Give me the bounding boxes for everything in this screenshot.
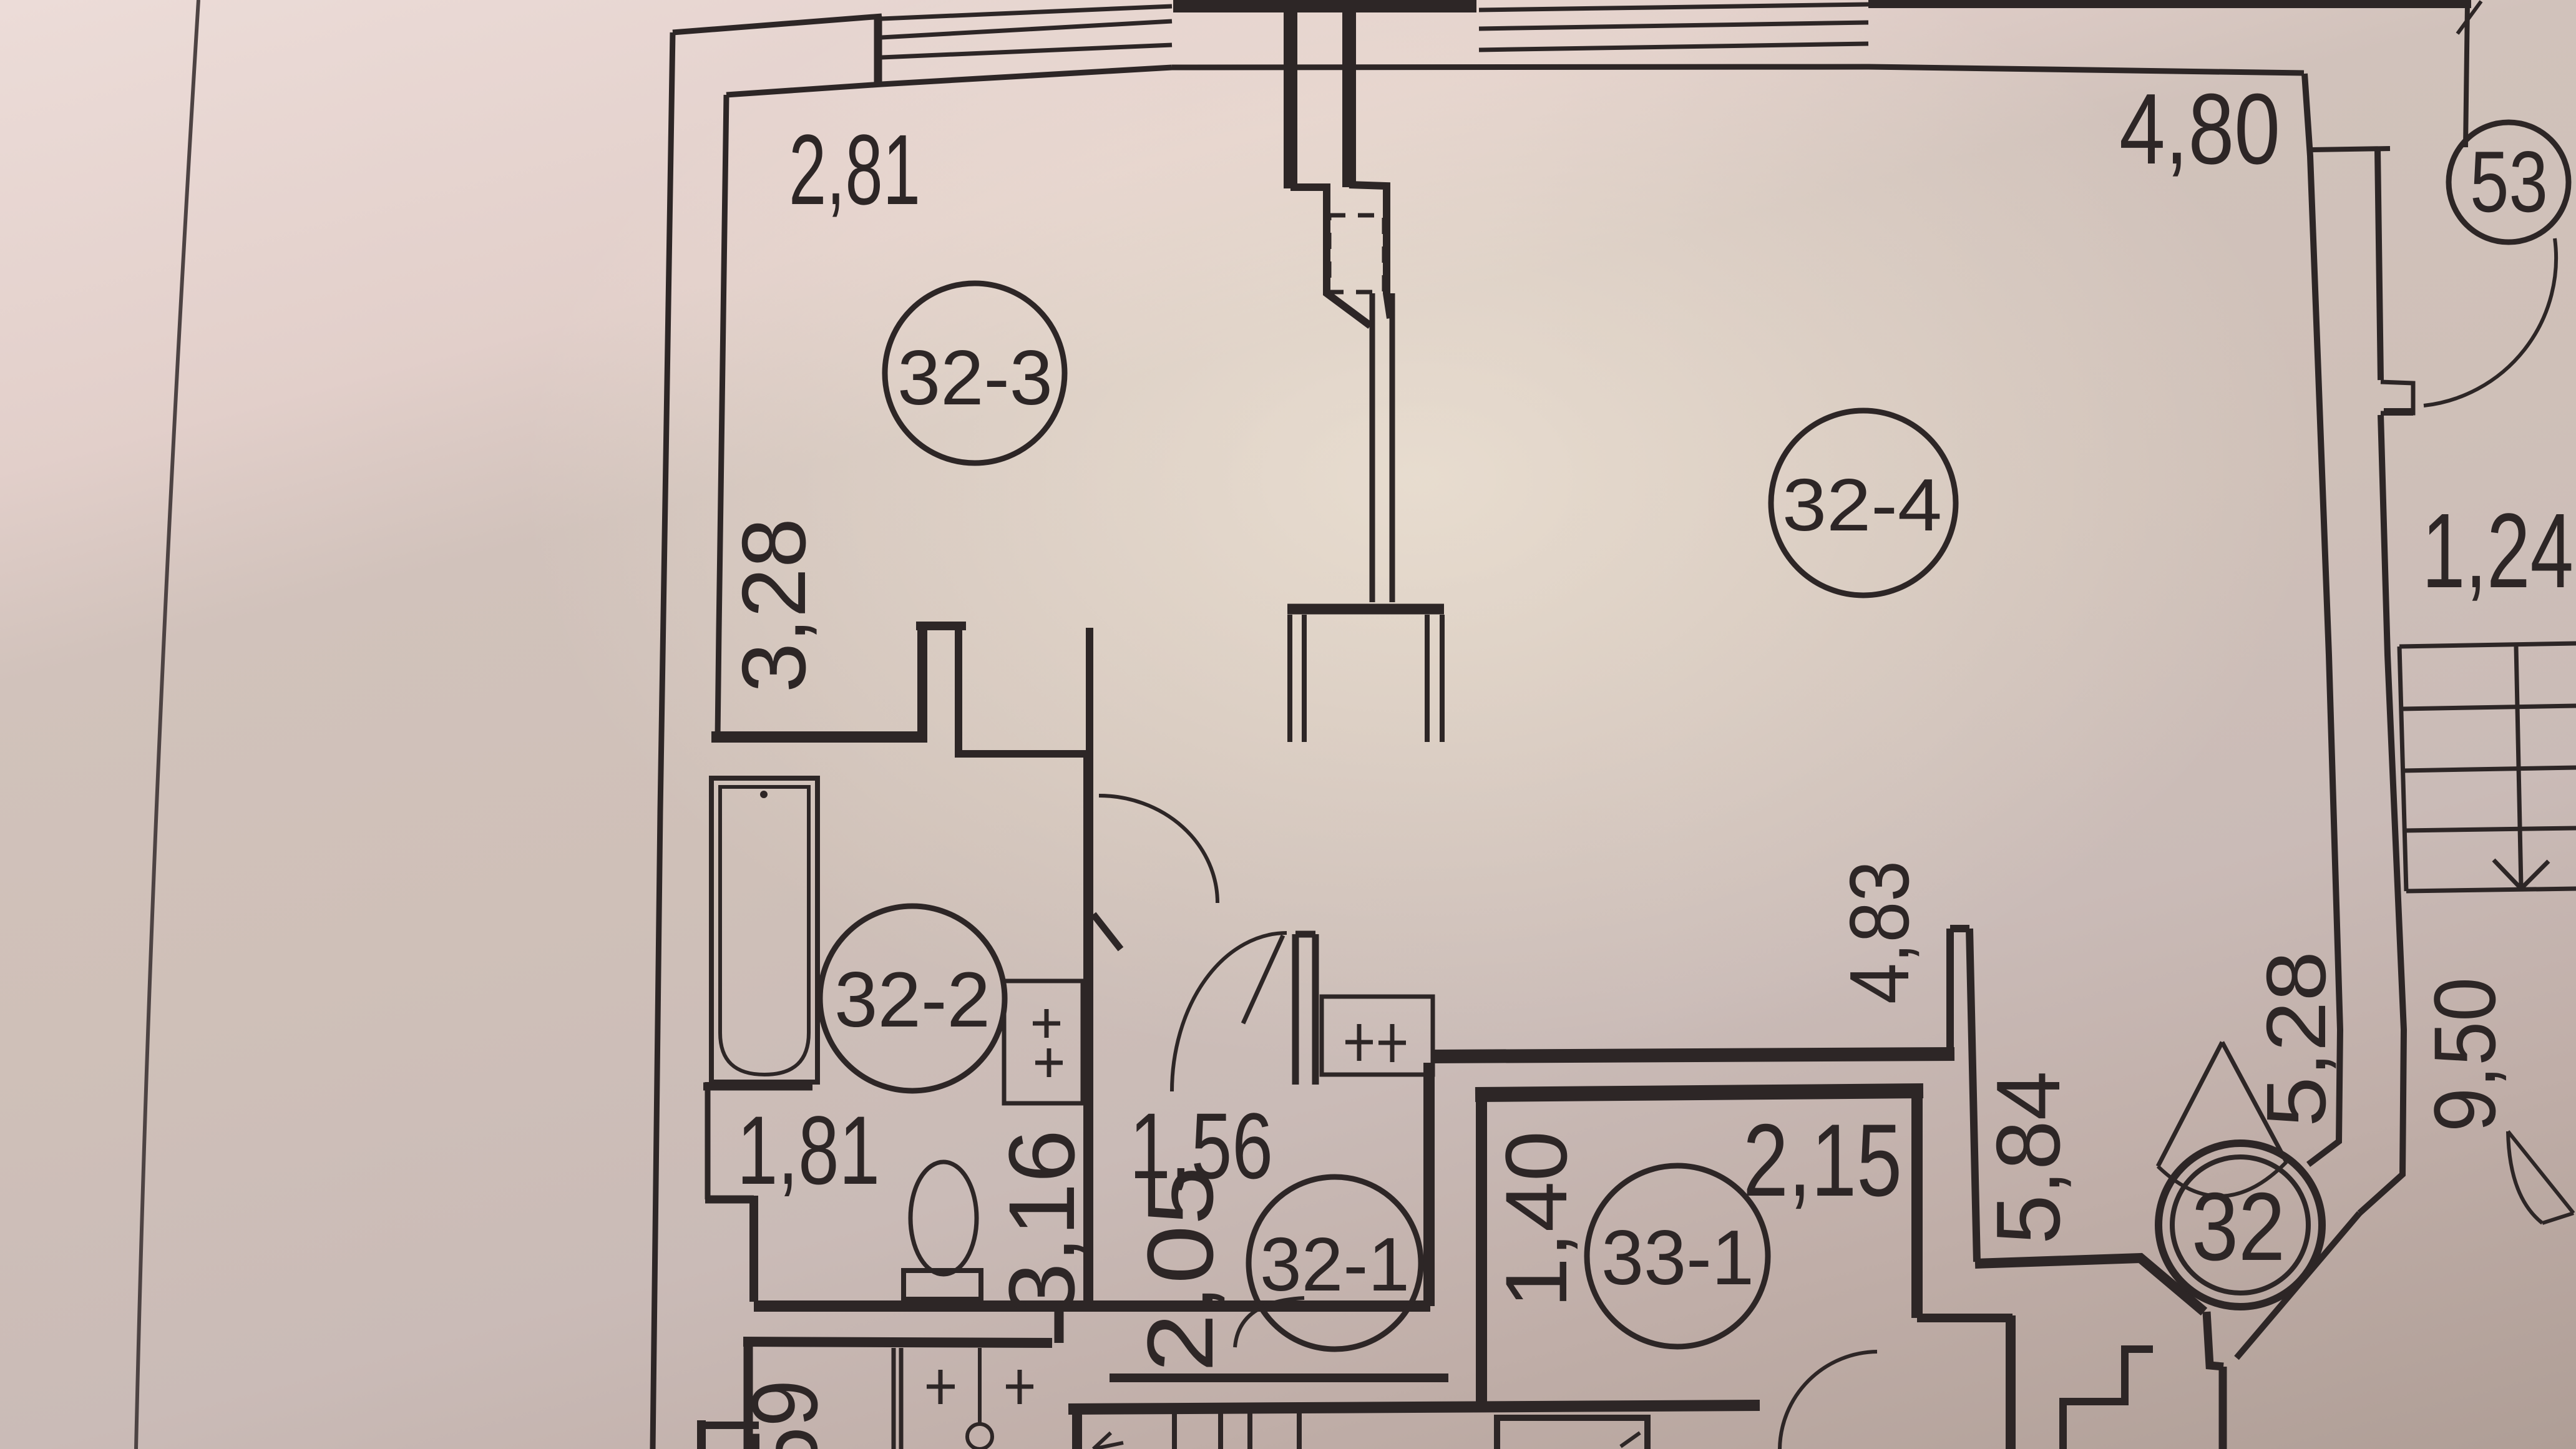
svg-text:9,50: 9,50 <box>2416 977 2514 1132</box>
svg-text:1,40: 1,40 <box>1487 1131 1585 1308</box>
svg-text:32-3: 32-3 <box>897 335 1053 421</box>
svg-text:2,81: 2,81 <box>789 114 920 225</box>
svg-text:5,28: 5,28 <box>2249 951 2343 1127</box>
svg-text:32-1: 32-1 <box>1260 1222 1410 1307</box>
svg-text:1,59: 1,59 <box>732 1380 837 1449</box>
svg-text:4,80: 4,80 <box>2119 73 2280 185</box>
svg-text:5,84: 5,84 <box>1978 1071 2079 1244</box>
svg-text:33-1: 33-1 <box>1601 1215 1754 1301</box>
svg-text:3,28: 3,28 <box>723 518 824 693</box>
svg-text:4,83: 4,83 <box>1832 861 1926 1004</box>
svg-text:1,24: 1,24 <box>2422 492 2574 610</box>
svg-text:2,05: 2,05 <box>1128 1166 1232 1372</box>
svg-text:3,16: 3,16 <box>989 1129 1094 1316</box>
svg-text:32: 32 <box>2192 1173 2285 1281</box>
svg-text:32-4: 32-4 <box>1782 464 1942 547</box>
svg-text:2,15: 2,15 <box>1743 1103 1902 1217</box>
svg-text:1,81: 1,81 <box>737 1096 880 1205</box>
svg-text:53: 53 <box>2470 134 2548 230</box>
svg-text:32-2: 32-2 <box>834 957 990 1043</box>
